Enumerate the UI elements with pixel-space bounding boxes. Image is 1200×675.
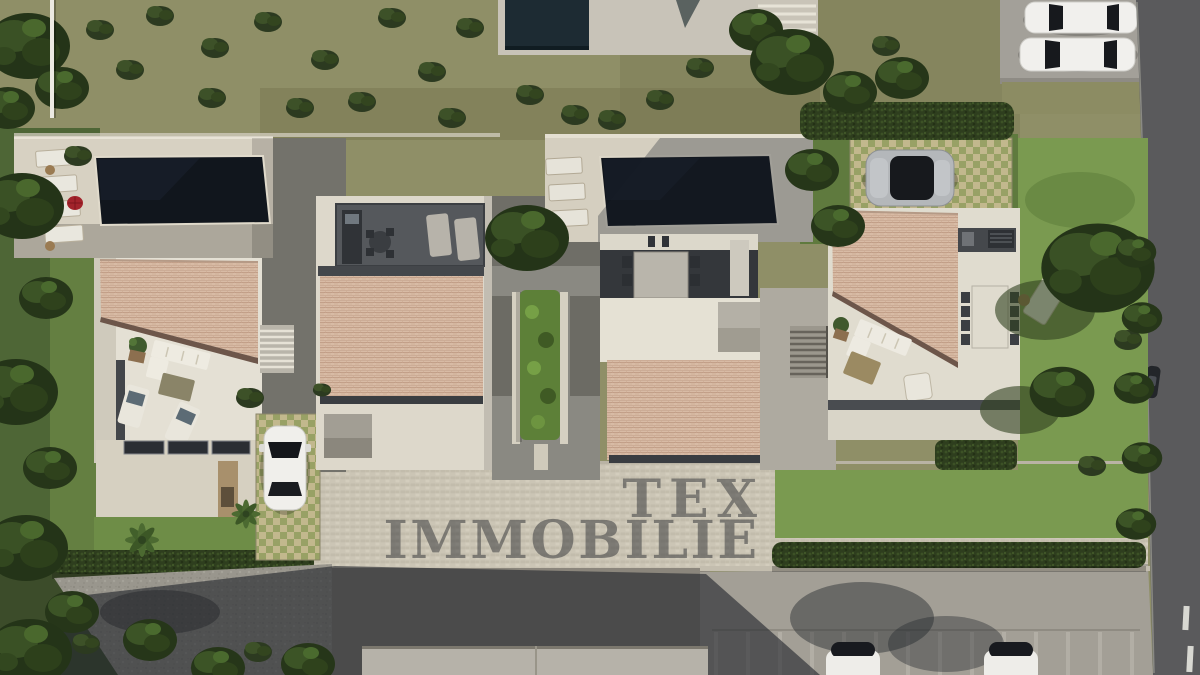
outdoor-kitchen-right — [958, 228, 1016, 252]
east-walkway — [760, 288, 836, 470]
stone-curb — [560, 292, 568, 444]
house-hedge — [935, 440, 1017, 470]
parked-car-bottom-2 — [984, 642, 1038, 675]
right-annex-tiled-roof — [607, 360, 767, 460]
parked-car-bottom-1 — [826, 642, 880, 675]
silver-car — [862, 150, 958, 206]
right-bottom-hedge — [772, 542, 1146, 568]
white-car-left — [259, 425, 311, 515]
left-roof-terrace — [336, 204, 484, 266]
right-south-lawn — [768, 470, 1148, 548]
roof-lounger — [426, 213, 452, 257]
palm-tree — [125, 523, 159, 557]
side-table — [45, 241, 55, 251]
lawn-highlight — [1025, 172, 1135, 228]
neighbor-pool — [505, 0, 589, 50]
left-house — [94, 258, 262, 463]
armchair — [903, 372, 932, 401]
parked-car-top-2 — [1018, 38, 1138, 72]
roof-lounger — [454, 217, 480, 261]
left-stairs — [260, 325, 294, 373]
skylight — [124, 441, 164, 454]
olive-strip — [1002, 82, 1142, 114]
garden-bush — [236, 388, 264, 408]
right-house — [828, 208, 1020, 470]
flag-pole — [50, 0, 56, 118]
skylight — [212, 441, 250, 454]
render-canvas — [0, 0, 1200, 675]
left-annex-tiled-roof — [320, 276, 483, 398]
left-lower-roof — [96, 440, 257, 518]
right-stairs — [790, 326, 833, 378]
palm-tree — [232, 500, 261, 529]
courtyard-post — [534, 444, 548, 470]
loggia-pillar — [730, 240, 749, 296]
side-table — [45, 165, 55, 175]
right-villa-pool-area — [545, 134, 813, 242]
skylight — [168, 441, 208, 454]
left-annex — [316, 196, 492, 470]
bottom-flat-roof — [362, 646, 708, 675]
boundary-wall — [14, 133, 500, 137]
road-dash — [1182, 606, 1189, 630]
aerial-render: TEX IMMOBILIE — [0, 0, 1200, 675]
loggia-table — [634, 252, 688, 298]
parked-car-top-1 — [1023, 2, 1139, 36]
